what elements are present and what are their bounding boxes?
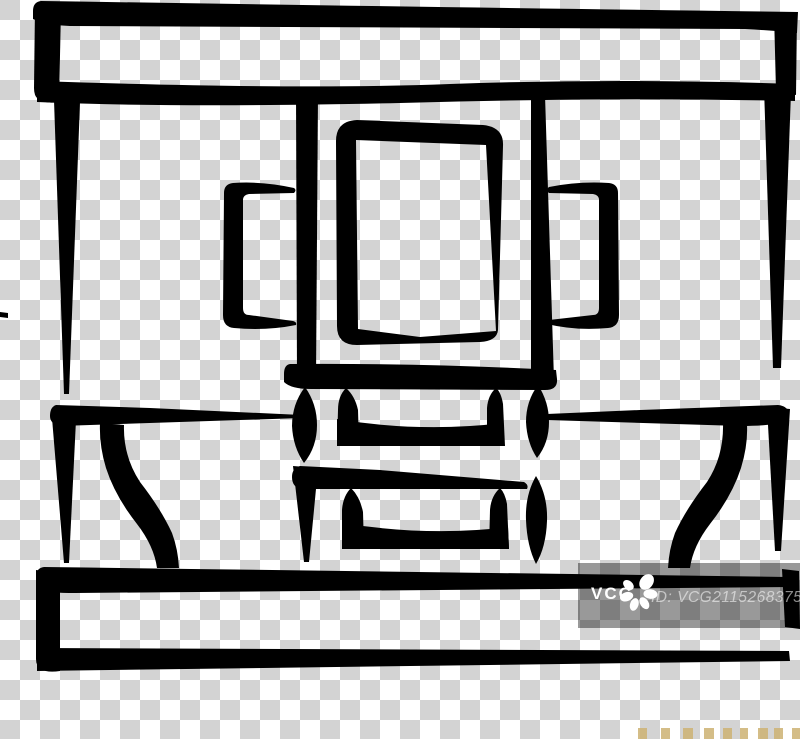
cropped-glyph [740, 728, 748, 739]
cropped-glyph [792, 728, 800, 739]
mirror-right-post [531, 94, 554, 380]
stray-ink-dash [0, 312, 8, 318]
mid-rails [50, 405, 789, 489]
cropped-glyph [683, 728, 693, 739]
lower-drawer-bottom [342, 523, 509, 549]
lower-drawer-right [489, 488, 509, 549]
lower-left-leg [52, 418, 76, 563]
mirror-frame [336, 120, 503, 345]
lower-drawer [342, 488, 509, 549]
upper-left-leg [54, 100, 80, 394]
vcg-id-text: ID: VCG211526837544 [651, 589, 800, 607]
vcg-watermark: VCG ID: VCG211526837544 [578, 563, 800, 628]
left-handle [223, 183, 296, 329]
upper-drawer-right [487, 388, 505, 446]
mirror-assembly [284, 92, 557, 390]
lower-left-spindle [293, 466, 318, 562]
upper-drawer-bottom [337, 419, 504, 446]
tabletop-top-bar [33, 1, 798, 33]
drawer-divider-rail [292, 466, 528, 489]
cropped-glyph [723, 728, 732, 739]
upper-left-spindle [292, 387, 317, 463]
cropped-glyph [661, 728, 670, 739]
cropped-glyph [774, 728, 783, 739]
lower-right-leg [767, 407, 790, 551]
mirror-base-band [284, 364, 557, 390]
tabletop-right-bar [774, 13, 797, 95]
upper-right-leg [764, 87, 791, 368]
cropped-glyph [704, 728, 714, 739]
side-handles [223, 183, 619, 330]
right-mid-rail [547, 405, 789, 426]
left-corbel [100, 423, 179, 568]
legs [52, 87, 791, 563]
tabletop-frame [33, 1, 798, 105]
right-handle [546, 183, 619, 329]
stock-image-preview: VCG ID: VCG211526837544 [0, 0, 800, 739]
upper-drawer [337, 388, 505, 446]
plinth-bottom-bar [37, 648, 790, 671]
upper-right-spindle [526, 385, 549, 458]
left-mid-rail [50, 405, 302, 426]
dressing-table-illustration [0, 0, 800, 739]
right-corbel [668, 423, 747, 568]
mirror-left-post [296, 92, 318, 380]
cropped-glyph [758, 728, 768, 739]
lower-right-spindle [526, 476, 547, 564]
tabletop-apron-bar [37, 81, 795, 105]
cropped-glyph [638, 728, 647, 739]
